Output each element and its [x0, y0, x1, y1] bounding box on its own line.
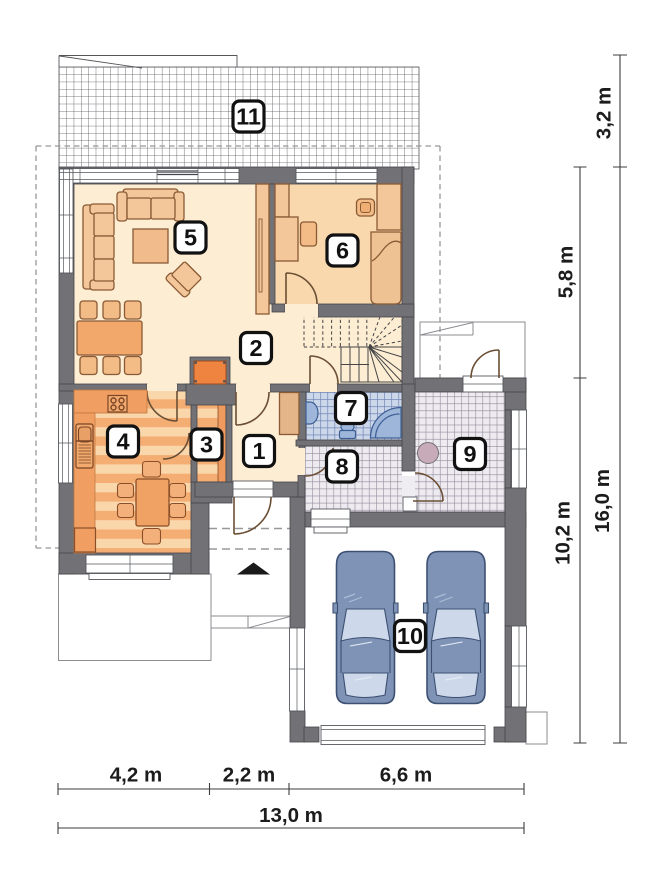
svg-text:7: 7 — [344, 395, 357, 421]
svg-text:11: 11 — [236, 104, 261, 130]
svg-text:16,0 m: 16,0 m — [591, 469, 614, 533]
svg-text:3,2 m: 3,2 m — [593, 87, 616, 139]
svg-text:10: 10 — [397, 623, 423, 649]
svg-text:1: 1 — [252, 438, 265, 464]
svg-text:6: 6 — [336, 238, 349, 264]
svg-text:3: 3 — [200, 432, 213, 458]
svg-text:2: 2 — [249, 335, 262, 361]
svg-text:2,2 m: 2,2 m — [223, 764, 275, 787]
svg-text:6,6 m: 6,6 m — [380, 764, 432, 787]
svg-text:10,2 m: 10,2 m — [552, 501, 575, 565]
svg-text:8: 8 — [335, 454, 348, 480]
svg-text:5: 5 — [184, 225, 197, 251]
svg-text:4: 4 — [116, 429, 129, 455]
svg-text:9: 9 — [463, 441, 476, 467]
svg-text:5,8 m: 5,8 m — [555, 246, 578, 298]
svg-text:13,0 m: 13,0 m — [259, 804, 323, 827]
svg-text:4,2 m: 4,2 m — [110, 764, 162, 787]
